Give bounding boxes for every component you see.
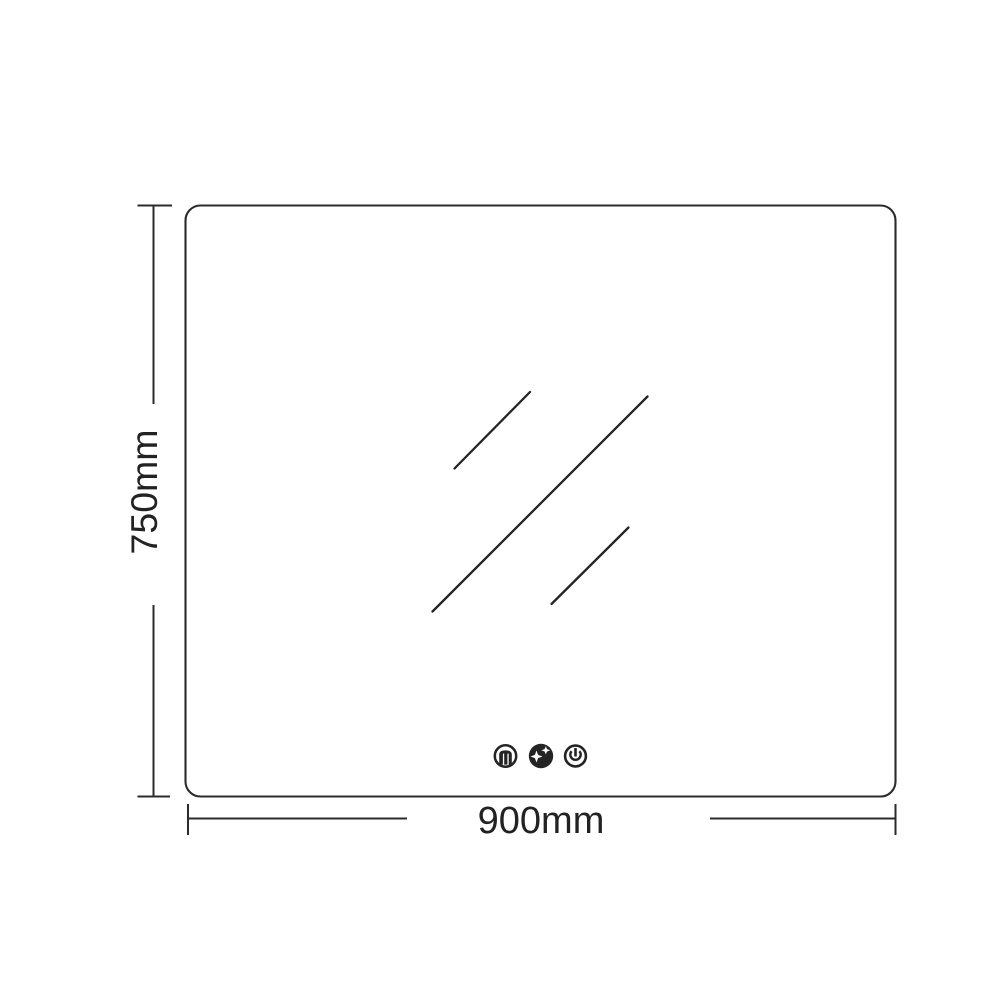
svg-text:900mm: 900mm — [478, 800, 605, 842]
svg-text:750mm: 750mm — [123, 429, 165, 554]
